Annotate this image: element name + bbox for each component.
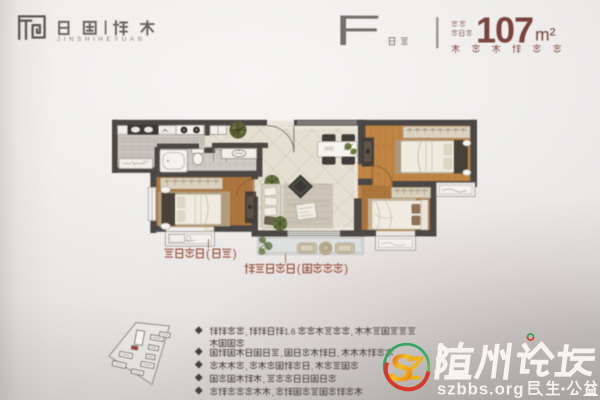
svg-text:szbbs.org: szbbs.org [437, 380, 524, 399]
svg-text:S: S [389, 347, 415, 390]
